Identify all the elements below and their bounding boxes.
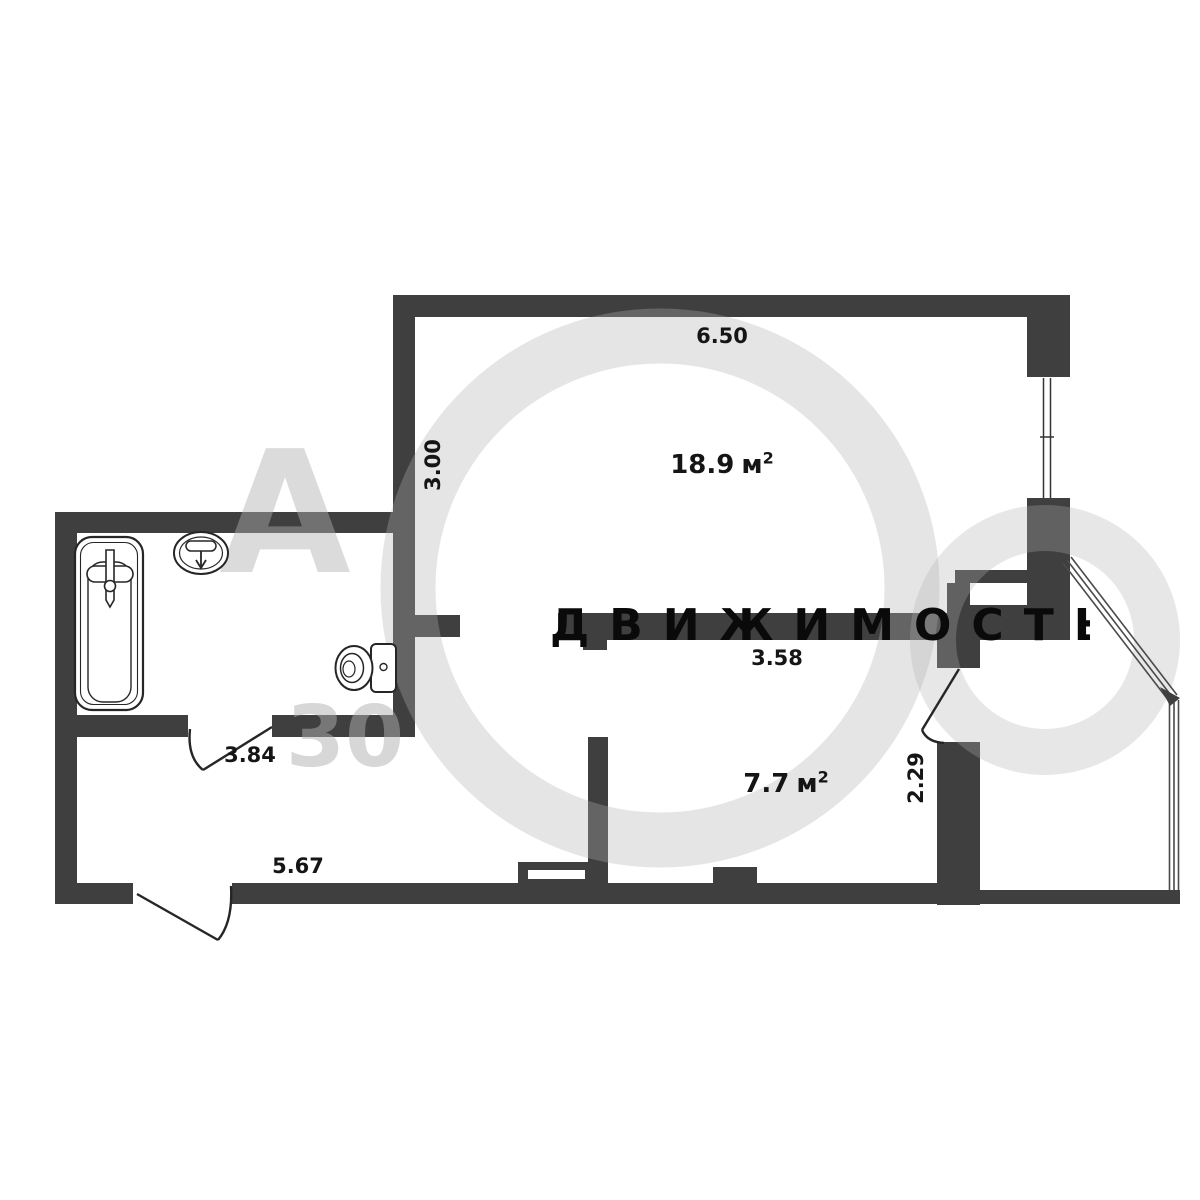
- dim-left-height: 3.00: [421, 439, 445, 491]
- area-unit: м2: [796, 769, 828, 799]
- bathtub-icon: [75, 537, 143, 710]
- window-icon: [1040, 378, 1054, 498]
- area-value: 18.9: [670, 450, 734, 480]
- room-area-label-main: 18.9м2: [670, 448, 774, 480]
- floor-plan: А 30: [0, 0, 1200, 1200]
- toilet-icon: [336, 644, 397, 692]
- area-unit: м2: [741, 450, 773, 480]
- entrance-door-icon: [137, 886, 231, 940]
- watermark-letter: А: [219, 415, 351, 613]
- watermark-ring-large: [408, 336, 912, 840]
- plan-linework: А 30: [0, 0, 1200, 1200]
- sink-icon: [174, 532, 228, 574]
- dim-hall-width: 5.67: [272, 854, 324, 878]
- dim-top-width: 6.50: [696, 324, 748, 348]
- area-value: 7.7: [743, 769, 789, 799]
- dim-bath-door: 3.84: [224, 743, 276, 767]
- watermark-text: ДВИЖИМОСТЬ: [550, 603, 1090, 649]
- watermark-number: 30: [286, 688, 404, 787]
- dim-inner-wall: 3.58: [751, 646, 803, 670]
- dim-right-door: 2.29: [904, 752, 928, 804]
- room-area-label-hall: 7.7м2: [743, 767, 828, 799]
